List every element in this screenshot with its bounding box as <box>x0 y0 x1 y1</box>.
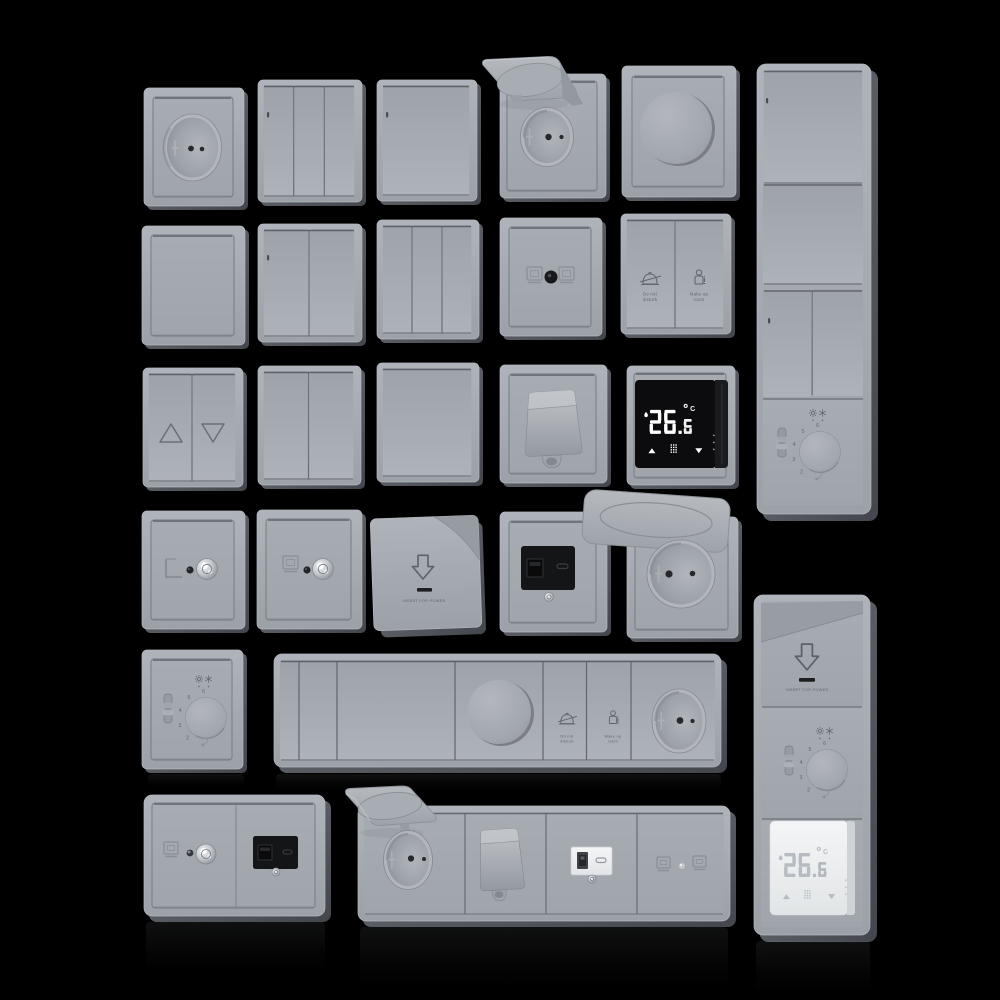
svg-text:4: 4 <box>793 442 796 448</box>
svg-text:5: 5 <box>188 695 191 701</box>
svg-text:3: 3 <box>179 723 182 729</box>
svg-text:INSERT FOR POWER: INSERT FOR POWER <box>785 688 828 692</box>
svg-text:2: 2 <box>807 788 810 794</box>
svg-text:INSERT FOR POWER: INSERT FOR POWER <box>402 599 445 603</box>
svg-text:2: 2 <box>186 736 189 742</box>
svg-text:disturb: disturb <box>560 740 574 744</box>
svg-text:Make up: Make up <box>605 735 622 739</box>
svg-text:4: 4 <box>179 708 182 714</box>
svg-text:Do not: Do not <box>561 735 575 739</box>
svg-text:2: 2 <box>800 470 803 476</box>
svg-text:C: C <box>823 849 829 857</box>
svg-text:disturb: disturb <box>643 297 658 302</box>
svg-text:C: C <box>690 406 696 414</box>
svg-text:Make up: Make up <box>690 292 709 297</box>
svg-text:6: 6 <box>816 423 819 429</box>
svg-text:3: 3 <box>793 457 796 463</box>
svg-text:5: 5 <box>802 429 805 435</box>
svg-text:room: room <box>608 740 618 744</box>
svg-text:6: 6 <box>823 741 826 747</box>
svg-text:Do not: Do not <box>643 292 658 297</box>
svg-text:4: 4 <box>800 760 803 766</box>
svg-text:room: room <box>694 297 705 302</box>
svg-text:3: 3 <box>800 775 803 781</box>
svg-text:5: 5 <box>809 747 812 753</box>
svg-text:6: 6 <box>202 689 205 695</box>
